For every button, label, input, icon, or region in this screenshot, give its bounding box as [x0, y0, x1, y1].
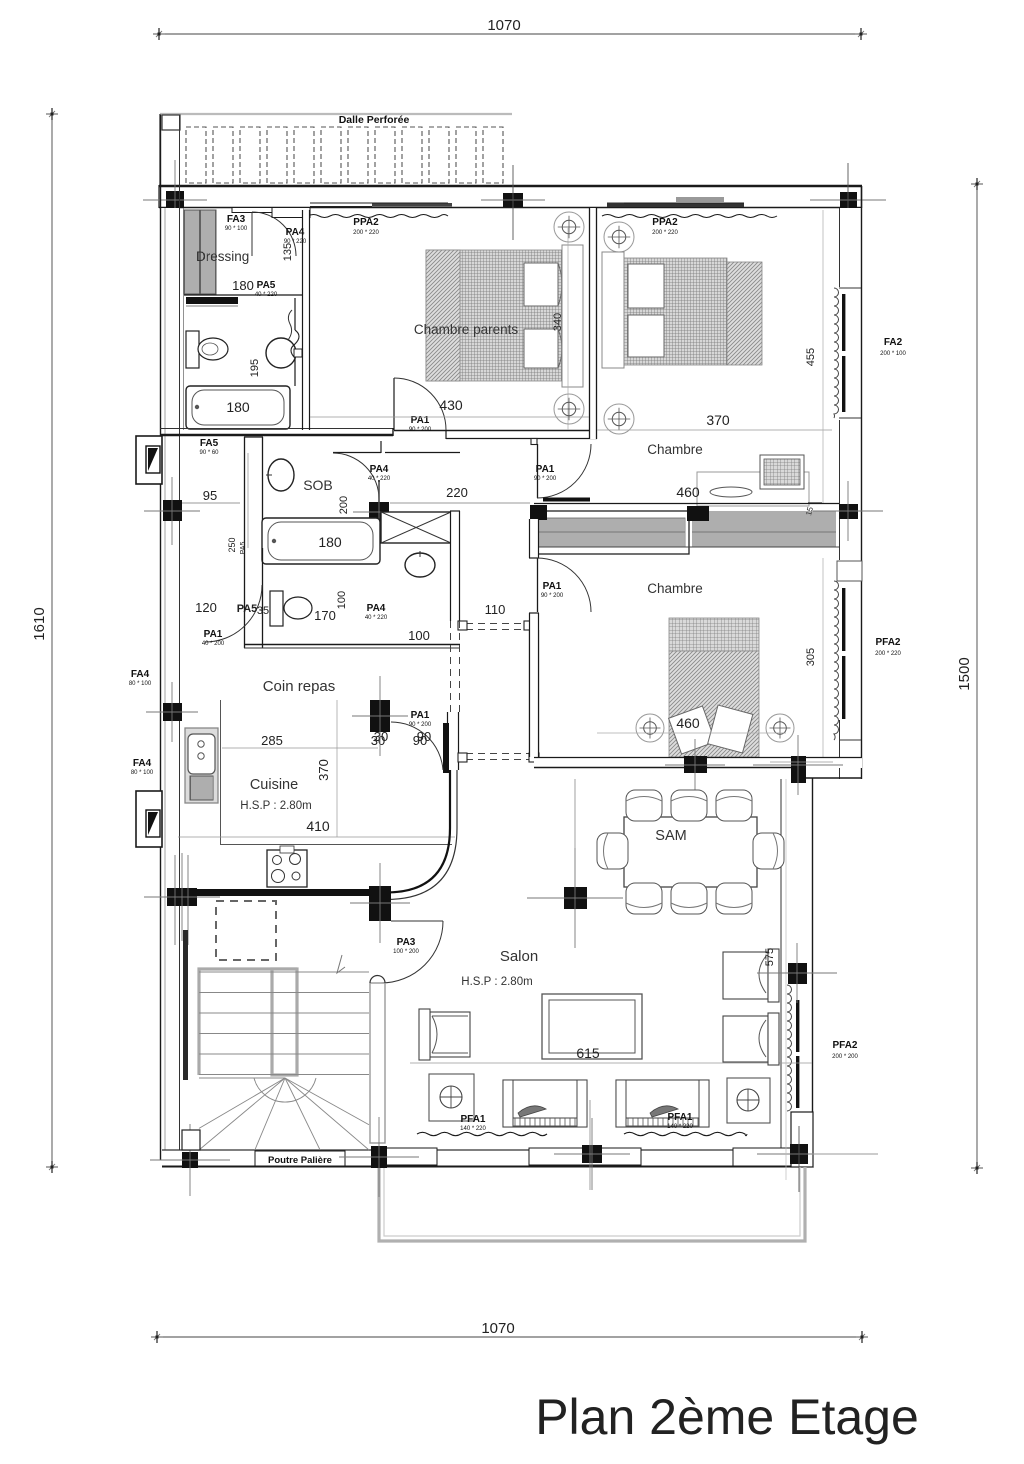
svg-text:FA3: FA3	[227, 214, 246, 225]
svg-text:35: 35	[257, 605, 269, 617]
svg-text:PA3: PA3	[397, 937, 416, 948]
svg-text:FA2: FA2	[884, 337, 903, 348]
svg-text:100: 100	[336, 591, 348, 609]
svg-text:80 * 100: 80 * 100	[131, 770, 154, 776]
svg-text:Chambre parents: Chambre parents	[414, 322, 519, 337]
svg-text:285: 285	[261, 733, 283, 748]
svg-text:575: 575	[764, 948, 776, 966]
svg-text:340: 340	[552, 313, 564, 331]
svg-text:FA4: FA4	[133, 758, 152, 769]
svg-text:1070: 1070	[487, 17, 520, 34]
svg-text:140 * 220: 140 * 220	[667, 1124, 693, 1130]
svg-text:370: 370	[316, 759, 331, 781]
svg-text:140 * 220: 140 * 220	[460, 1126, 486, 1132]
svg-text:180: 180	[232, 278, 254, 293]
svg-text:PA1: PA1	[536, 464, 555, 475]
svg-text:40 * 200: 40 * 200	[202, 641, 225, 647]
svg-text:90 * 200: 90 * 200	[534, 476, 557, 482]
svg-text:PA1: PA1	[543, 581, 562, 592]
svg-text:Chambre: Chambre	[647, 581, 703, 596]
svg-text:195: 195	[249, 359, 261, 377]
svg-text:Salon: Salon	[500, 948, 538, 965]
svg-text:PA4: PA4	[286, 227, 305, 238]
svg-text:Coin repas: Coin repas	[263, 678, 336, 695]
svg-text:110: 110	[485, 602, 506, 617]
svg-text:200 * 220: 200 * 220	[875, 651, 901, 657]
svg-text:PFA2: PFA2	[832, 1040, 857, 1051]
svg-text:305: 305	[805, 648, 817, 666]
svg-text:90 * 200: 90 * 200	[409, 722, 432, 728]
svg-text:90 * 100: 90 * 100	[225, 226, 248, 232]
svg-text:30: 30	[371, 733, 385, 748]
svg-text:PPA2: PPA2	[353, 217, 379, 228]
svg-text:PFA2: PFA2	[875, 637, 900, 648]
svg-text:Cuisine: Cuisine	[250, 777, 298, 793]
svg-text:Dressing: Dressing	[196, 249, 249, 264]
svg-text:SAM: SAM	[655, 828, 686, 844]
svg-text:SOB: SOB	[303, 477, 333, 493]
svg-text:100: 100	[408, 628, 430, 643]
svg-text:40 * 220: 40 * 220	[368, 476, 391, 482]
svg-text:PA4: PA4	[370, 464, 389, 475]
svg-text:PFA1: PFA1	[460, 1114, 485, 1125]
svg-text:PA1: PA1	[411, 710, 430, 721]
svg-text:Poutre Palière: Poutre Palière	[268, 1155, 332, 1166]
svg-text:615: 615	[576, 1045, 600, 1061]
svg-text:90: 90	[413, 733, 427, 748]
svg-text:410: 410	[306, 818, 330, 834]
svg-text:PA1: PA1	[204, 629, 223, 640]
svg-text:180: 180	[318, 534, 342, 550]
svg-text:120: 120	[195, 600, 217, 615]
svg-text:FA5: FA5	[200, 438, 219, 449]
svg-text:PA5: PA5	[240, 542, 247, 555]
svg-text:Plan 2ème Etage: Plan 2ème Etage	[535, 1389, 919, 1445]
svg-text:100 * 200: 100 * 200	[393, 949, 419, 955]
svg-text:H.S.P : 2.80m: H.S.P : 2.80m	[461, 976, 532, 988]
svg-text:PA5: PA5	[237, 603, 258, 615]
svg-text:430: 430	[439, 397, 463, 413]
svg-text:455: 455	[805, 348, 817, 366]
svg-text:H.S.P : 2.80m: H.S.P : 2.80m	[240, 800, 311, 812]
svg-text:200 * 100: 200 * 100	[880, 351, 906, 357]
svg-text:200 * 200: 200 * 200	[832, 1054, 858, 1060]
svg-text:Chambre: Chambre	[647, 442, 703, 457]
svg-text:460: 460	[676, 484, 700, 500]
svg-text:FA4: FA4	[131, 669, 150, 680]
svg-text:200 * 220: 200 * 220	[652, 230, 678, 236]
svg-text:170: 170	[314, 608, 336, 623]
svg-text:180: 180	[226, 399, 250, 415]
svg-text:PPA2: PPA2	[652, 217, 678, 228]
svg-text:PA4: PA4	[367, 603, 386, 614]
svg-text:250: 250	[227, 537, 237, 552]
svg-text:220: 220	[446, 485, 468, 500]
svg-text:200 * 220: 200 * 220	[353, 230, 379, 236]
svg-text:1610: 1610	[31, 607, 48, 640]
svg-text:Dalle Perforée: Dalle Perforée	[339, 114, 410, 126]
svg-text:80 * 100: 80 * 100	[129, 681, 152, 687]
svg-text:370: 370	[706, 412, 730, 428]
svg-text:95: 95	[203, 488, 217, 503]
svg-text:PFA1: PFA1	[667, 1112, 692, 1123]
svg-text:460: 460	[676, 715, 700, 731]
svg-text:90 * 200: 90 * 200	[541, 593, 564, 599]
svg-text:40 * 220: 40 * 220	[365, 615, 388, 621]
svg-text:1500: 1500	[956, 657, 973, 690]
svg-text:1070: 1070	[481, 1320, 514, 1337]
svg-text:PA5: PA5	[257, 280, 276, 291]
svg-text:135: 135	[282, 243, 294, 261]
svg-text:90 * 200: 90 * 200	[409, 427, 432, 433]
svg-text:200: 200	[338, 496, 350, 514]
svg-text:90 * 60: 90 * 60	[199, 450, 219, 456]
